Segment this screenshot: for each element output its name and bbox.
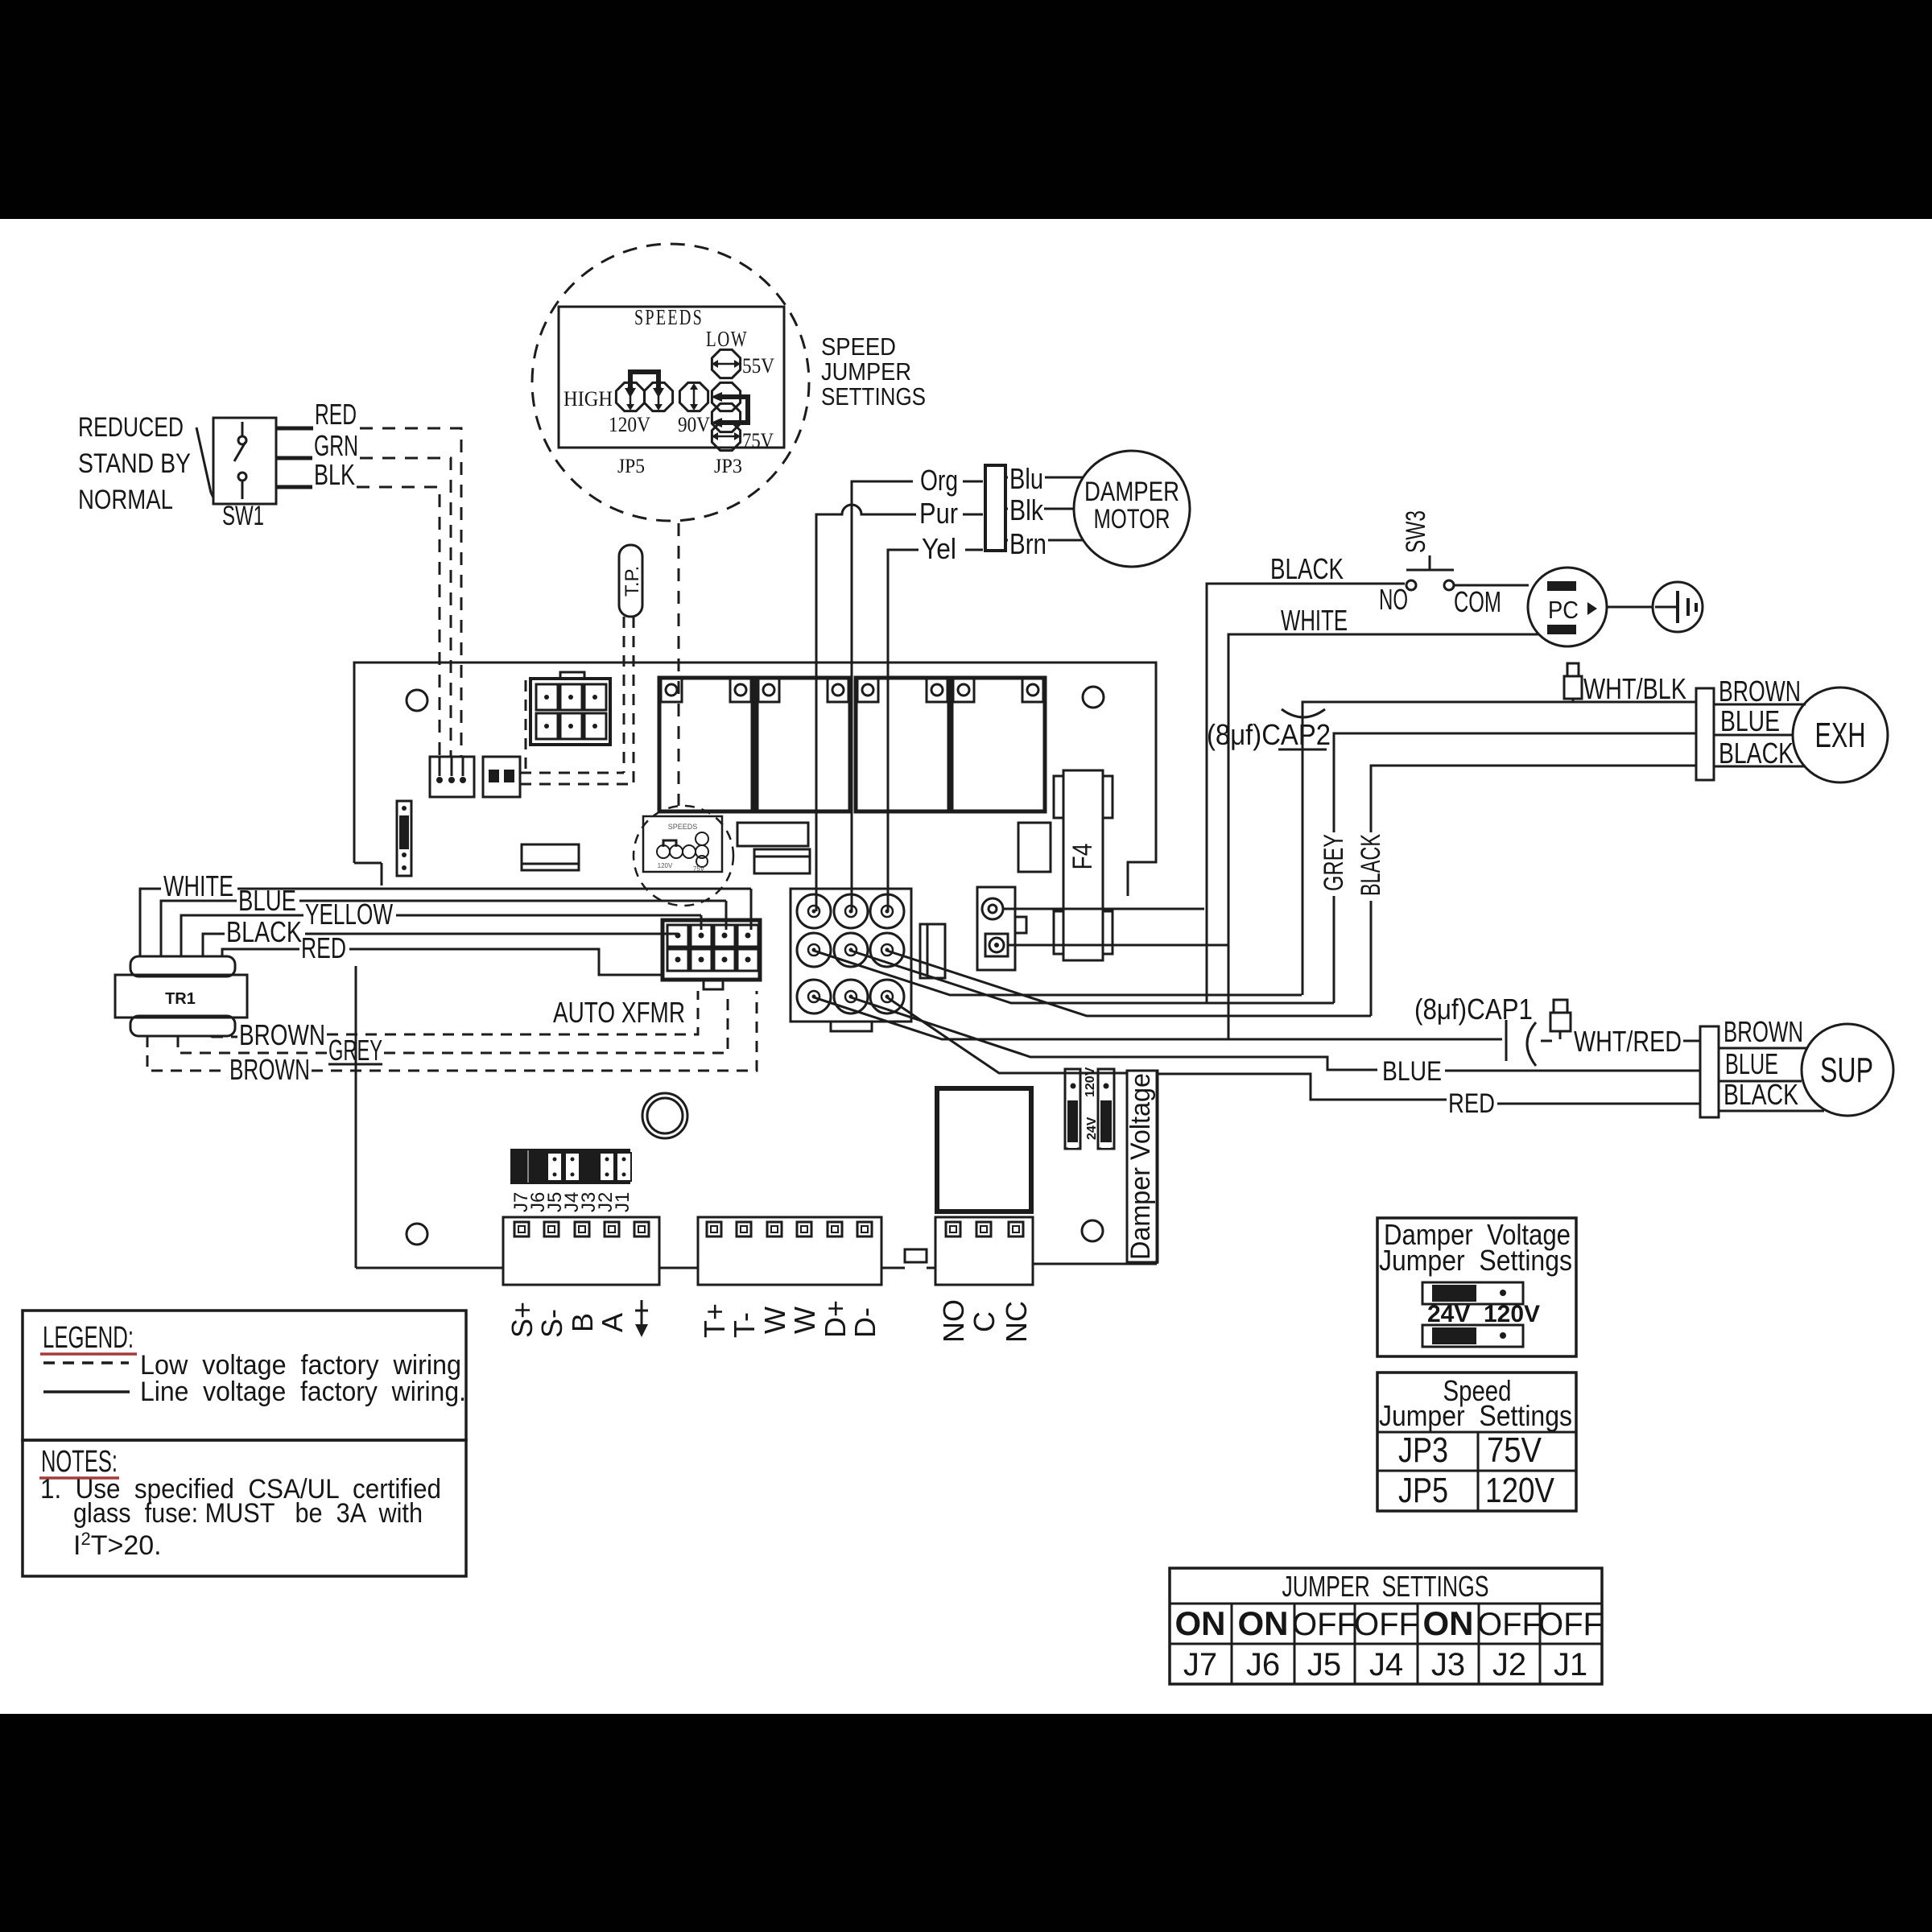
svg-text:BLUE: BLUE bbox=[1725, 1047, 1778, 1080]
svg-text:JP3: JP3 bbox=[714, 456, 742, 477]
svg-text:RED: RED bbox=[301, 931, 346, 964]
svg-text:S-: S- bbox=[535, 1309, 568, 1338]
svg-text:J1: J1 bbox=[612, 1192, 634, 1212]
svg-text:ON: ON bbox=[1175, 1604, 1226, 1642]
svg-text:120V: 120V bbox=[1485, 1471, 1555, 1510]
svg-text:ON: ON bbox=[1423, 1604, 1474, 1642]
svg-text:HIGH: HIGH bbox=[563, 387, 613, 411]
svg-text:J5: J5 bbox=[1307, 1647, 1341, 1682]
svg-text:75V: 75V bbox=[693, 865, 705, 873]
svg-text:YELLOW: YELLOW bbox=[305, 898, 393, 931]
svg-text:BLACK: BLACK bbox=[1356, 834, 1386, 896]
svg-text:BROWN: BROWN bbox=[239, 1018, 325, 1051]
svg-text:ON: ON bbox=[1238, 1604, 1289, 1642]
svg-text:Blu: Blu bbox=[1009, 462, 1043, 495]
svg-text:Org: Org bbox=[920, 464, 958, 497]
svg-text:TR1: TR1 bbox=[165, 990, 196, 1008]
svg-text:OFF: OFF bbox=[1477, 1607, 1542, 1642]
svg-text:EXH: EXH bbox=[1815, 716, 1866, 755]
svg-text:J7: J7 bbox=[1183, 1647, 1217, 1682]
svg-text:STAND BY: STAND BY bbox=[78, 448, 191, 479]
svg-text:Line voltage factory wiring: Line voltage factory wiring. bbox=[140, 1377, 466, 1407]
svg-text:COM: COM bbox=[1454, 585, 1501, 618]
svg-text:GREY: GREY bbox=[1319, 834, 1349, 891]
svg-text:D-: D- bbox=[848, 1307, 881, 1338]
svg-text:120V: 120V bbox=[1084, 1067, 1097, 1097]
svg-text:24V: 24V bbox=[1085, 1117, 1099, 1140]
svg-text:GREY: GREY bbox=[328, 1034, 382, 1067]
svg-text:W: W bbox=[758, 1307, 791, 1334]
svg-text:RED: RED bbox=[315, 398, 357, 431]
svg-text:Brn: Brn bbox=[1009, 527, 1046, 560]
svg-text:D+: D+ bbox=[819, 1300, 852, 1338]
svg-text:OFF: OFF bbox=[1354, 1607, 1418, 1642]
svg-text:JP3: JP3 bbox=[1398, 1430, 1448, 1470]
svg-text:BROWN: BROWN bbox=[1724, 1015, 1803, 1048]
svg-text:OFF: OFF bbox=[1538, 1607, 1603, 1642]
svg-text:WHITE: WHITE bbox=[163, 869, 233, 902]
svg-text:OFF: OFF bbox=[1292, 1607, 1356, 1642]
svg-text:MOTOR: MOTOR bbox=[1094, 504, 1170, 535]
svg-text:Pur: Pur bbox=[919, 497, 958, 530]
svg-text:BLACK: BLACK bbox=[1719, 737, 1794, 770]
svg-text:BROWN: BROWN bbox=[229, 1053, 310, 1086]
svg-text:T-: T- bbox=[728, 1312, 761, 1338]
svg-text:J1: J1 bbox=[1554, 1647, 1587, 1682]
svg-text:Damper Voltage: Damper Voltage bbox=[1125, 1073, 1156, 1260]
svg-text:J2: J2 bbox=[1492, 1647, 1526, 1682]
svg-text:NO: NO bbox=[937, 1299, 970, 1343]
svg-text:GRN: GRN bbox=[314, 429, 358, 462]
svg-text:WHT/RED: WHT/RED bbox=[1574, 1025, 1682, 1058]
svg-text:T+: T+ bbox=[698, 1303, 731, 1338]
svg-text:BLUE: BLUE bbox=[238, 884, 296, 917]
svg-text:glass fuse: MUST be 3A wi: glass fuse: MUST be 3A with bbox=[73, 1498, 423, 1529]
svg-text:RED: RED bbox=[1448, 1088, 1495, 1119]
svg-text:B: B bbox=[566, 1313, 599, 1332]
svg-text:J4: J4 bbox=[1369, 1647, 1403, 1682]
svg-text:55V: 55V bbox=[742, 354, 774, 378]
svg-text:(8μf)CAP2: (8μf)CAP2 bbox=[1207, 718, 1331, 751]
svg-text:NORMAL: NORMAL bbox=[78, 485, 173, 515]
svg-text:F4: F4 bbox=[1067, 844, 1098, 870]
svg-text:A: A bbox=[596, 1313, 629, 1332]
svg-text:NC: NC bbox=[1000, 1301, 1033, 1343]
svg-text:Yel: Yel bbox=[922, 532, 956, 565]
svg-text:WHT/BLK: WHT/BLK bbox=[1583, 672, 1686, 705]
svg-text:AUTO XFMR: AUTO XFMR bbox=[553, 996, 685, 1029]
svg-text:WHITE: WHITE bbox=[1281, 604, 1348, 637]
svg-text:24V: 24V bbox=[1427, 1301, 1470, 1327]
svg-text:BLUE: BLUE bbox=[1382, 1056, 1442, 1087]
svg-text:BLACK: BLACK bbox=[226, 915, 302, 948]
svg-text:NO: NO bbox=[1379, 583, 1408, 616]
svg-text:REDUCED: REDUCED bbox=[78, 412, 184, 443]
svg-text:SPEEDS: SPEEDS bbox=[668, 823, 698, 831]
svg-text:T.P.: T.P. bbox=[621, 566, 643, 597]
svg-text:PC: PC bbox=[1548, 596, 1579, 624]
svg-text:SUP: SUP bbox=[1820, 1051, 1873, 1090]
svg-text:J3: J3 bbox=[1431, 1647, 1465, 1682]
svg-text:75V: 75V bbox=[742, 429, 774, 452]
svg-text:JUMPER SETTINGS: JUMPER SETTINGS bbox=[1282, 1570, 1489, 1603]
svg-text:JUMPER: JUMPER bbox=[821, 357, 911, 386]
svg-text:BLACK: BLACK bbox=[1270, 552, 1344, 585]
svg-text:BLUE: BLUE bbox=[1720, 704, 1780, 737]
svg-text:(8μf)CAP1: (8μf)CAP1 bbox=[1414, 993, 1533, 1026]
svg-text:LOW: LOW bbox=[706, 327, 748, 351]
svg-text:BLK: BLK bbox=[314, 458, 355, 491]
svg-text:C: C bbox=[968, 1311, 1001, 1332]
svg-text:J6: J6 bbox=[1246, 1647, 1280, 1682]
svg-text:JP5: JP5 bbox=[617, 456, 645, 477]
svg-text:JP5: JP5 bbox=[1398, 1471, 1448, 1510]
svg-text:SPEEDS: SPEEDS bbox=[634, 305, 704, 329]
svg-text:90V: 90V bbox=[678, 413, 710, 436]
svg-text:DAMPER: DAMPER bbox=[1084, 477, 1179, 507]
svg-text:120V: 120V bbox=[658, 862, 673, 869]
svg-text:SPEED: SPEED bbox=[821, 332, 896, 361]
svg-text:Jumper Settings: Jumper Settings bbox=[1379, 1244, 1572, 1277]
svg-text:BROWN: BROWN bbox=[1719, 675, 1801, 708]
svg-text:75V: 75V bbox=[1487, 1430, 1542, 1470]
svg-text:BLACK: BLACK bbox=[1724, 1078, 1798, 1111]
svg-text:SW3: SW3 bbox=[1401, 510, 1431, 553]
svg-text:120V: 120V bbox=[609, 413, 650, 436]
svg-text:LEGEND:: LEGEND: bbox=[43, 1321, 134, 1355]
svg-text:120V: 120V bbox=[1484, 1301, 1540, 1327]
svg-text:W: W bbox=[788, 1307, 821, 1334]
svg-text:SW1: SW1 bbox=[222, 501, 264, 531]
svg-text:SETTINGS: SETTINGS bbox=[821, 382, 926, 411]
svg-text:Blk: Blk bbox=[1009, 493, 1044, 526]
svg-text:S+: S+ bbox=[506, 1302, 539, 1338]
svg-text:Jumper Settings: Jumper Settings bbox=[1379, 1399, 1572, 1432]
